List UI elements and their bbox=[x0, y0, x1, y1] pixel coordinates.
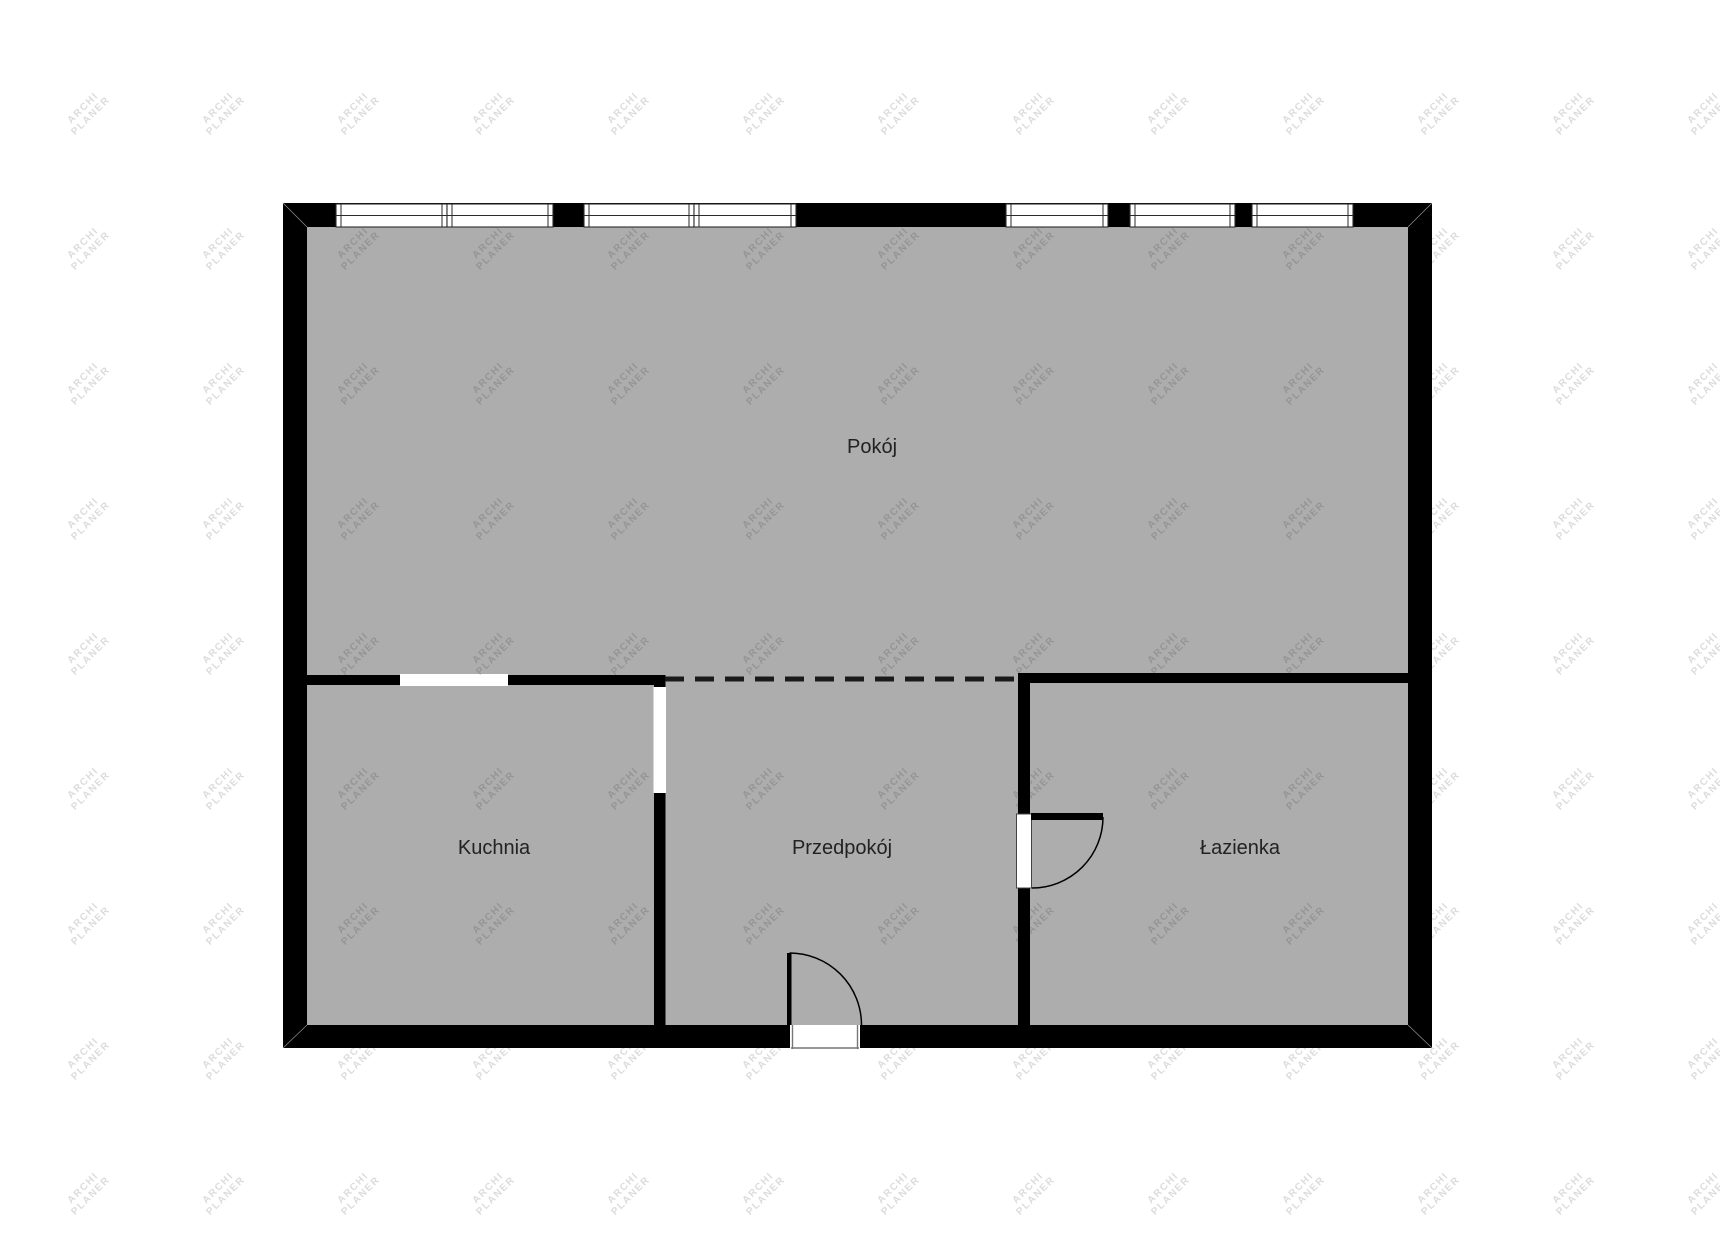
watermark-tile: ARCHIPLANER bbox=[1547, 357, 1598, 408]
watermark-tile: ARCHIPLANER bbox=[1547, 627, 1598, 678]
room-label-lazienka: Łazienka bbox=[1200, 837, 1281, 859]
watermark-tile: ARCHIPLANER bbox=[1547, 897, 1598, 948]
watermark-tile: ARCHIPLANER bbox=[62, 492, 113, 543]
watermark-tile: ARCHIPLANER bbox=[62, 762, 113, 813]
watermark-tile: ARCHIPLANER bbox=[62, 897, 113, 948]
kitchen-door-opening bbox=[654, 687, 667, 793]
watermark-tile: ARCHIPLANER bbox=[1682, 762, 1720, 813]
watermark-tile: ARCHIPLANER bbox=[872, 87, 923, 138]
watermark-tile: ARCHIPLANER bbox=[197, 222, 248, 273]
watermark-tile: ARCHIPLANER bbox=[1682, 222, 1720, 273]
watermark-tile: ARCHIPLANER bbox=[1547, 1167, 1598, 1218]
bathroom-door-leaf bbox=[1031, 813, 1103, 820]
watermark-tile: ARCHIPLANER bbox=[1142, 87, 1193, 138]
watermark-tile: ARCHIPLANER bbox=[1547, 492, 1598, 543]
watermark-tile: ARCHIPLANER bbox=[872, 1167, 923, 1218]
entrance-door-opening bbox=[790, 1025, 860, 1049]
watermark-tile: ARCHIPLANER bbox=[1682, 87, 1720, 138]
watermark-tile: ARCHIPLANER bbox=[197, 87, 248, 138]
watermark-tile: ARCHIPLANER bbox=[332, 1167, 383, 1218]
watermark-tile: ARCHIPLANER bbox=[1547, 762, 1598, 813]
watermark-tile: ARCHIPLANER bbox=[1412, 87, 1463, 138]
watermark-tile: ARCHIPLANER bbox=[602, 87, 653, 138]
watermark-tile: ARCHIPLANER bbox=[1682, 1032, 1720, 1083]
entrance-door-leaf bbox=[787, 953, 792, 1025]
window-3 bbox=[584, 204, 694, 227]
watermark-tile: ARCHIPLANER bbox=[1547, 87, 1598, 138]
floor bbox=[307, 227, 1408, 1025]
window-5 bbox=[1006, 204, 1108, 227]
watermark-tile: ARCHIPLANER bbox=[197, 627, 248, 678]
watermark-tile: ARCHIPLANER bbox=[467, 87, 518, 138]
watermark-tile: ARCHIPLANER bbox=[1412, 1167, 1463, 1218]
watermark-tile: ARCHIPLANER bbox=[62, 87, 113, 138]
bathroom-top-wall bbox=[1019, 673, 1408, 683]
watermark-tile: ARCHIPLANER bbox=[62, 1167, 113, 1218]
watermark-tile: ARCHIPLANER bbox=[62, 357, 113, 408]
floor-plan-svg: Pokój Kuchnia Przedpokój Łazienka ARCHIP… bbox=[0, 0, 1720, 1259]
room-label-pokoj: Pokój bbox=[847, 436, 897, 458]
window-6 bbox=[1130, 204, 1235, 227]
watermark-tile: ARCHIPLANER bbox=[1547, 1032, 1598, 1083]
kitchen-top-wall-right bbox=[508, 675, 665, 685]
watermark-tile: ARCHIPLANER bbox=[1007, 1167, 1058, 1218]
bathroom-door-opening bbox=[1017, 814, 1032, 888]
watermark-tile: ARCHIPLANER bbox=[467, 1167, 518, 1218]
kitchen-top-wall-left bbox=[307, 675, 400, 685]
watermark-tile: ARCHIPLANER bbox=[737, 87, 788, 138]
watermark-tile: ARCHIPLANER bbox=[197, 762, 248, 813]
watermark-tile: ARCHIPLANER bbox=[1142, 1167, 1193, 1218]
watermark-tile: ARCHIPLANER bbox=[1007, 87, 1058, 138]
watermark-tile: ARCHIPLANER bbox=[62, 222, 113, 273]
watermark-tile: ARCHIPLANER bbox=[197, 1032, 248, 1083]
floorplan-canvas: Pokój Kuchnia Przedpokój Łazienka ARCHIP… bbox=[0, 0, 1720, 1259]
window-4 bbox=[694, 204, 796, 227]
window-2 bbox=[447, 204, 553, 227]
room-label-kuchnia: Kuchnia bbox=[458, 837, 531, 859]
window-7 bbox=[1252, 204, 1353, 227]
watermark-tile: ARCHIPLANER bbox=[1682, 1167, 1720, 1218]
watermark-tile: ARCHIPLANER bbox=[1682, 897, 1720, 948]
watermark-tile: ARCHIPLANER bbox=[332, 87, 383, 138]
watermark-tile: ARCHIPLANER bbox=[62, 627, 113, 678]
watermark-tile: ARCHIPLANER bbox=[602, 1167, 653, 1218]
watermark-tile: ARCHIPLANER bbox=[1277, 1167, 1328, 1218]
watermark-tile: ARCHIPLANER bbox=[197, 357, 248, 408]
watermark-tile: ARCHIPLANER bbox=[1682, 627, 1720, 678]
room-label-przedpokoj: Przedpokój bbox=[792, 837, 892, 859]
watermark-tile: ARCHIPLANER bbox=[737, 1167, 788, 1218]
watermark-tile: ARCHIPLANER bbox=[1682, 357, 1720, 408]
watermark-tile: ARCHIPLANER bbox=[62, 1032, 113, 1083]
watermark-tile: ARCHIPLANER bbox=[1277, 87, 1328, 138]
watermark-tile: ARCHIPLANER bbox=[197, 1167, 248, 1218]
watermark-tile: ARCHIPLANER bbox=[1547, 222, 1598, 273]
window-1 bbox=[336, 204, 447, 227]
kitchen-pass-through-opening bbox=[400, 674, 508, 686]
watermark-tile: ARCHIPLANER bbox=[197, 897, 248, 948]
watermark-tile: ARCHIPLANER bbox=[1682, 492, 1720, 543]
watermark-tile: ARCHIPLANER bbox=[197, 492, 248, 543]
